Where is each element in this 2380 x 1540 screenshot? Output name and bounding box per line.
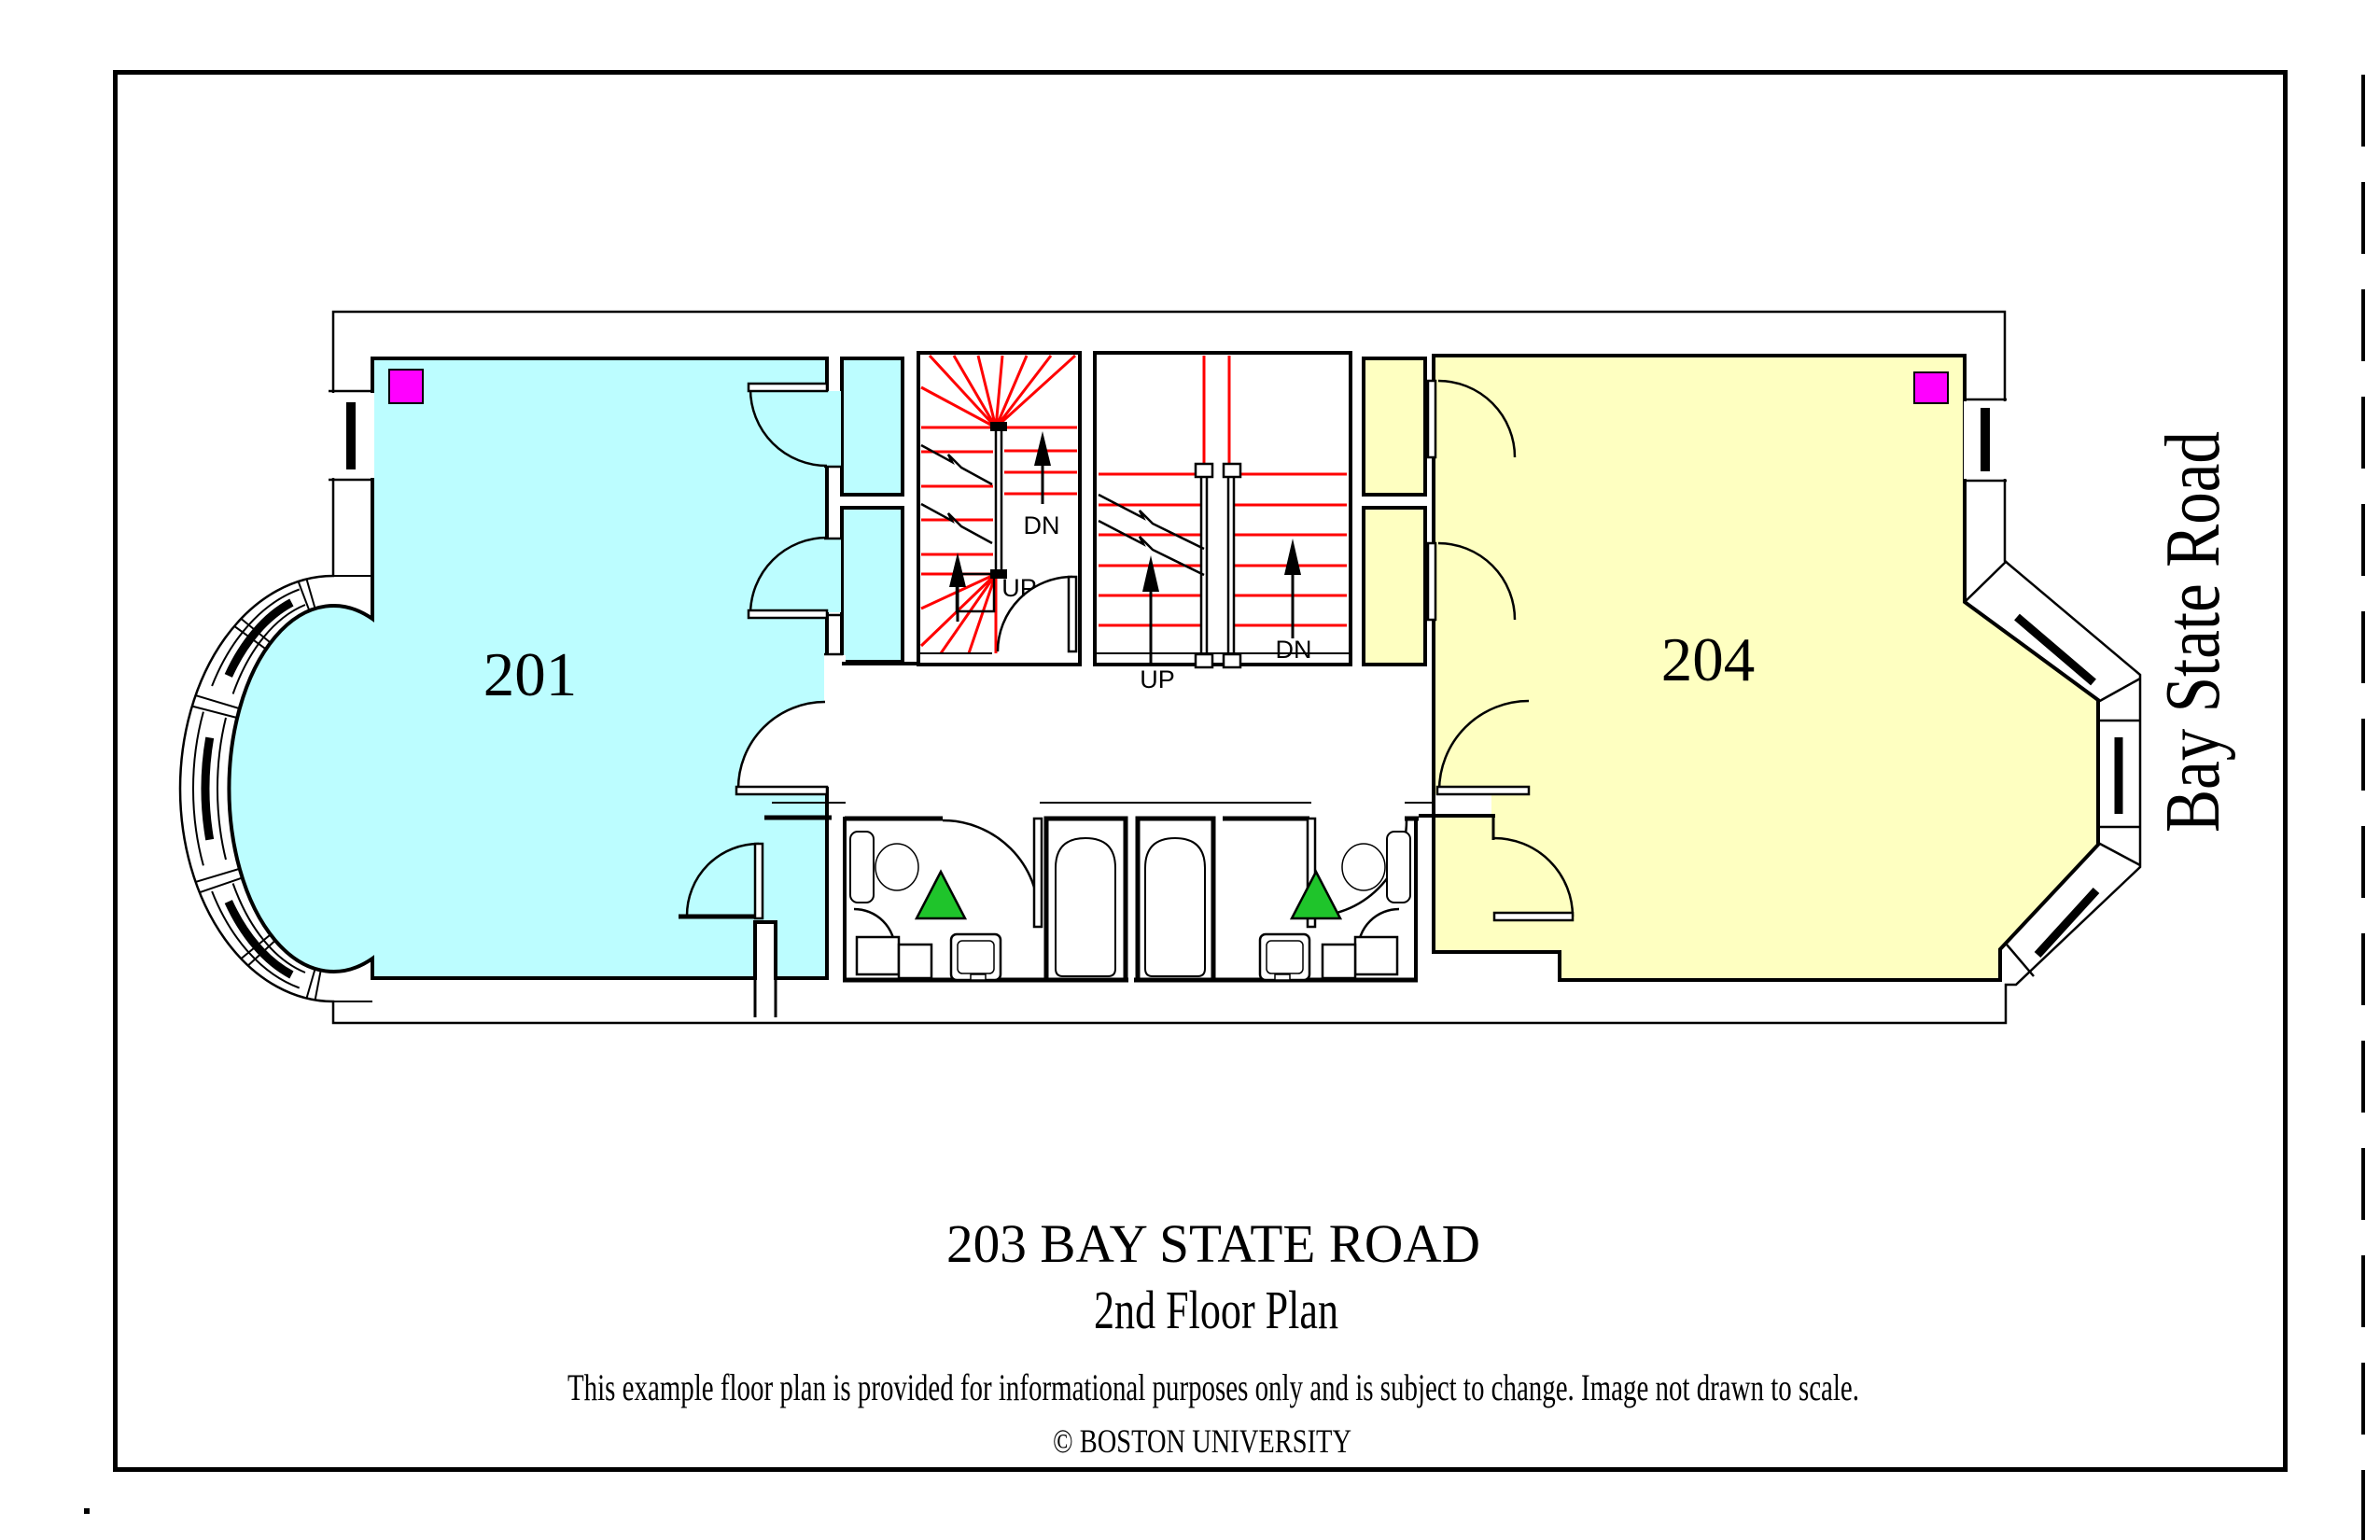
svg-text:Bay State Road: Bay State Road: [2149, 431, 2236, 833]
svg-text:DN: DN: [1276, 636, 1312, 664]
svg-text:2nd Floor Plan: 2nd Floor Plan: [1094, 1280, 1338, 1340]
svg-text:UP: UP: [1140, 665, 1175, 693]
svg-text:DN: DN: [1024, 511, 1060, 539]
svg-text:201: 201: [483, 640, 578, 709]
svg-text:This example floor plan is pro: This example floor plan is provided for …: [567, 1366, 1859, 1408]
svg-text:203 BAY STATE ROAD: 203 BAY STATE ROAD: [946, 1213, 1480, 1274]
svg-text:© BOSTON UNIVERSITY: © BOSTON UNIVERSITY: [1053, 1422, 1351, 1460]
svg-text:204: 204: [1661, 625, 1756, 694]
